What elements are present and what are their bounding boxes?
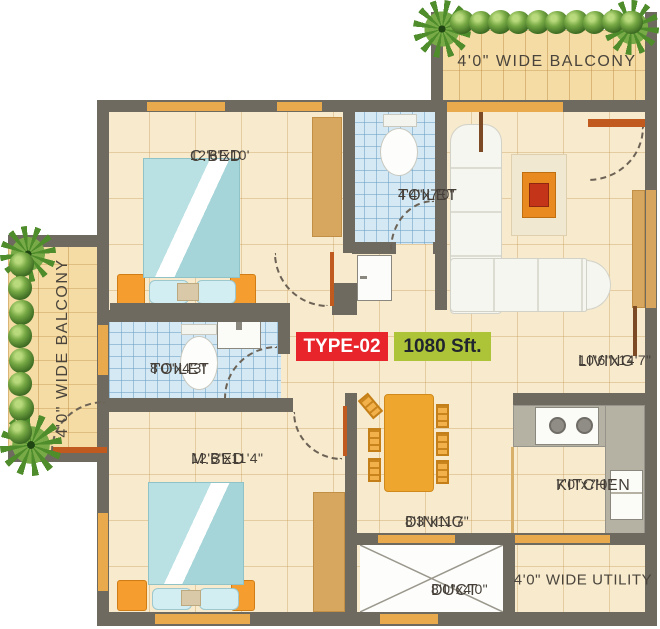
plant-icon bbox=[620, 11, 643, 34]
floor-plan: C.BED 12'6"x10' TOILET 4'4"x7'0" LIVING … bbox=[0, 0, 660, 629]
room-dims: 10'6"x14'7" bbox=[578, 352, 651, 369]
room-dims: 7'0"x7'0" bbox=[556, 476, 613, 493]
plant-icon bbox=[8, 372, 32, 396]
plant-icon bbox=[8, 420, 32, 444]
window-ledge bbox=[632, 190, 645, 308]
chair-icon bbox=[368, 458, 381, 482]
table-decor bbox=[529, 183, 549, 207]
door-leaf bbox=[343, 406, 347, 456]
wall-segment bbox=[278, 310, 290, 354]
window-sill bbox=[646, 190, 656, 308]
window-sill bbox=[155, 614, 250, 624]
duct-cross-icon bbox=[360, 545, 503, 612]
duct-area bbox=[360, 545, 503, 612]
room-dims: 12'6"x10' bbox=[190, 147, 250, 164]
chair-icon bbox=[436, 432, 449, 456]
plant-icon bbox=[9, 396, 34, 421]
room-dims: 8'0"x4'3" bbox=[150, 360, 207, 377]
balcony-top-label: 4'0" WIDE BALCONY bbox=[457, 53, 636, 71]
room-dims: 4'4"x7'0" bbox=[398, 186, 455, 203]
wall-segment bbox=[332, 283, 357, 315]
room-dims: 8'3"x11'7" bbox=[405, 513, 469, 530]
door-handle-icon bbox=[360, 276, 367, 279]
wall-segment bbox=[433, 242, 447, 254]
double-bed-icon bbox=[143, 158, 240, 278]
window-sill bbox=[98, 513, 108, 591]
dining-table-icon bbox=[384, 394, 434, 492]
headboard-shelf bbox=[181, 590, 201, 606]
burner-icon bbox=[549, 417, 566, 434]
type-badge: TYPE-02 bbox=[296, 332, 388, 361]
wardrobe-icon bbox=[313, 492, 345, 612]
kitchen-threshold bbox=[511, 447, 514, 535]
window-sill bbox=[515, 535, 610, 543]
toilet-tank-icon bbox=[181, 324, 217, 335]
wardrobe-icon bbox=[312, 117, 342, 237]
room-dims: 8'0"x4'0" bbox=[431, 581, 488, 598]
chair-icon bbox=[436, 404, 449, 428]
plant-icon bbox=[9, 348, 34, 373]
window-sill bbox=[447, 102, 563, 112]
nightstand-icon bbox=[117, 580, 147, 611]
sofa-icon bbox=[450, 258, 588, 312]
toilet-icon bbox=[380, 128, 418, 176]
wall-segment bbox=[109, 310, 290, 322]
nightstand-icon bbox=[117, 274, 145, 306]
chair-icon bbox=[368, 428, 381, 452]
window-sill bbox=[277, 102, 322, 111]
wall-segment bbox=[343, 112, 355, 253]
window-sill bbox=[98, 325, 108, 375]
window-sill bbox=[380, 614, 438, 624]
area-badge: 1080 Sft. bbox=[394, 332, 491, 361]
wall-segment bbox=[513, 393, 657, 405]
plant-icon bbox=[9, 252, 34, 277]
room-dims: 12'6"x11'4" bbox=[191, 450, 263, 467]
door-leaf bbox=[330, 252, 334, 306]
plant-icon bbox=[9, 300, 34, 325]
plant-icon bbox=[8, 324, 32, 348]
pillow-icon bbox=[196, 280, 236, 304]
window-sill bbox=[147, 102, 225, 111]
plant-icon bbox=[8, 276, 32, 300]
pillow-icon bbox=[199, 588, 239, 610]
curtain-icon bbox=[633, 306, 637, 356]
window-sill bbox=[378, 535, 455, 543]
curtain-icon bbox=[479, 112, 483, 152]
balcony-left-label: 4'0" WIDE BALCONY bbox=[54, 258, 72, 437]
utility-label: 4'0" WIDE UTILITY bbox=[514, 572, 652, 589]
double-bed-icon bbox=[148, 482, 244, 585]
door-leaf bbox=[588, 119, 645, 127]
wall-segment bbox=[109, 398, 293, 412]
wall-segment bbox=[435, 112, 447, 310]
toilet-tank-icon bbox=[383, 114, 417, 127]
headboard-shelf bbox=[177, 283, 199, 301]
chair-icon bbox=[436, 460, 449, 484]
burner-icon bbox=[576, 417, 593, 434]
